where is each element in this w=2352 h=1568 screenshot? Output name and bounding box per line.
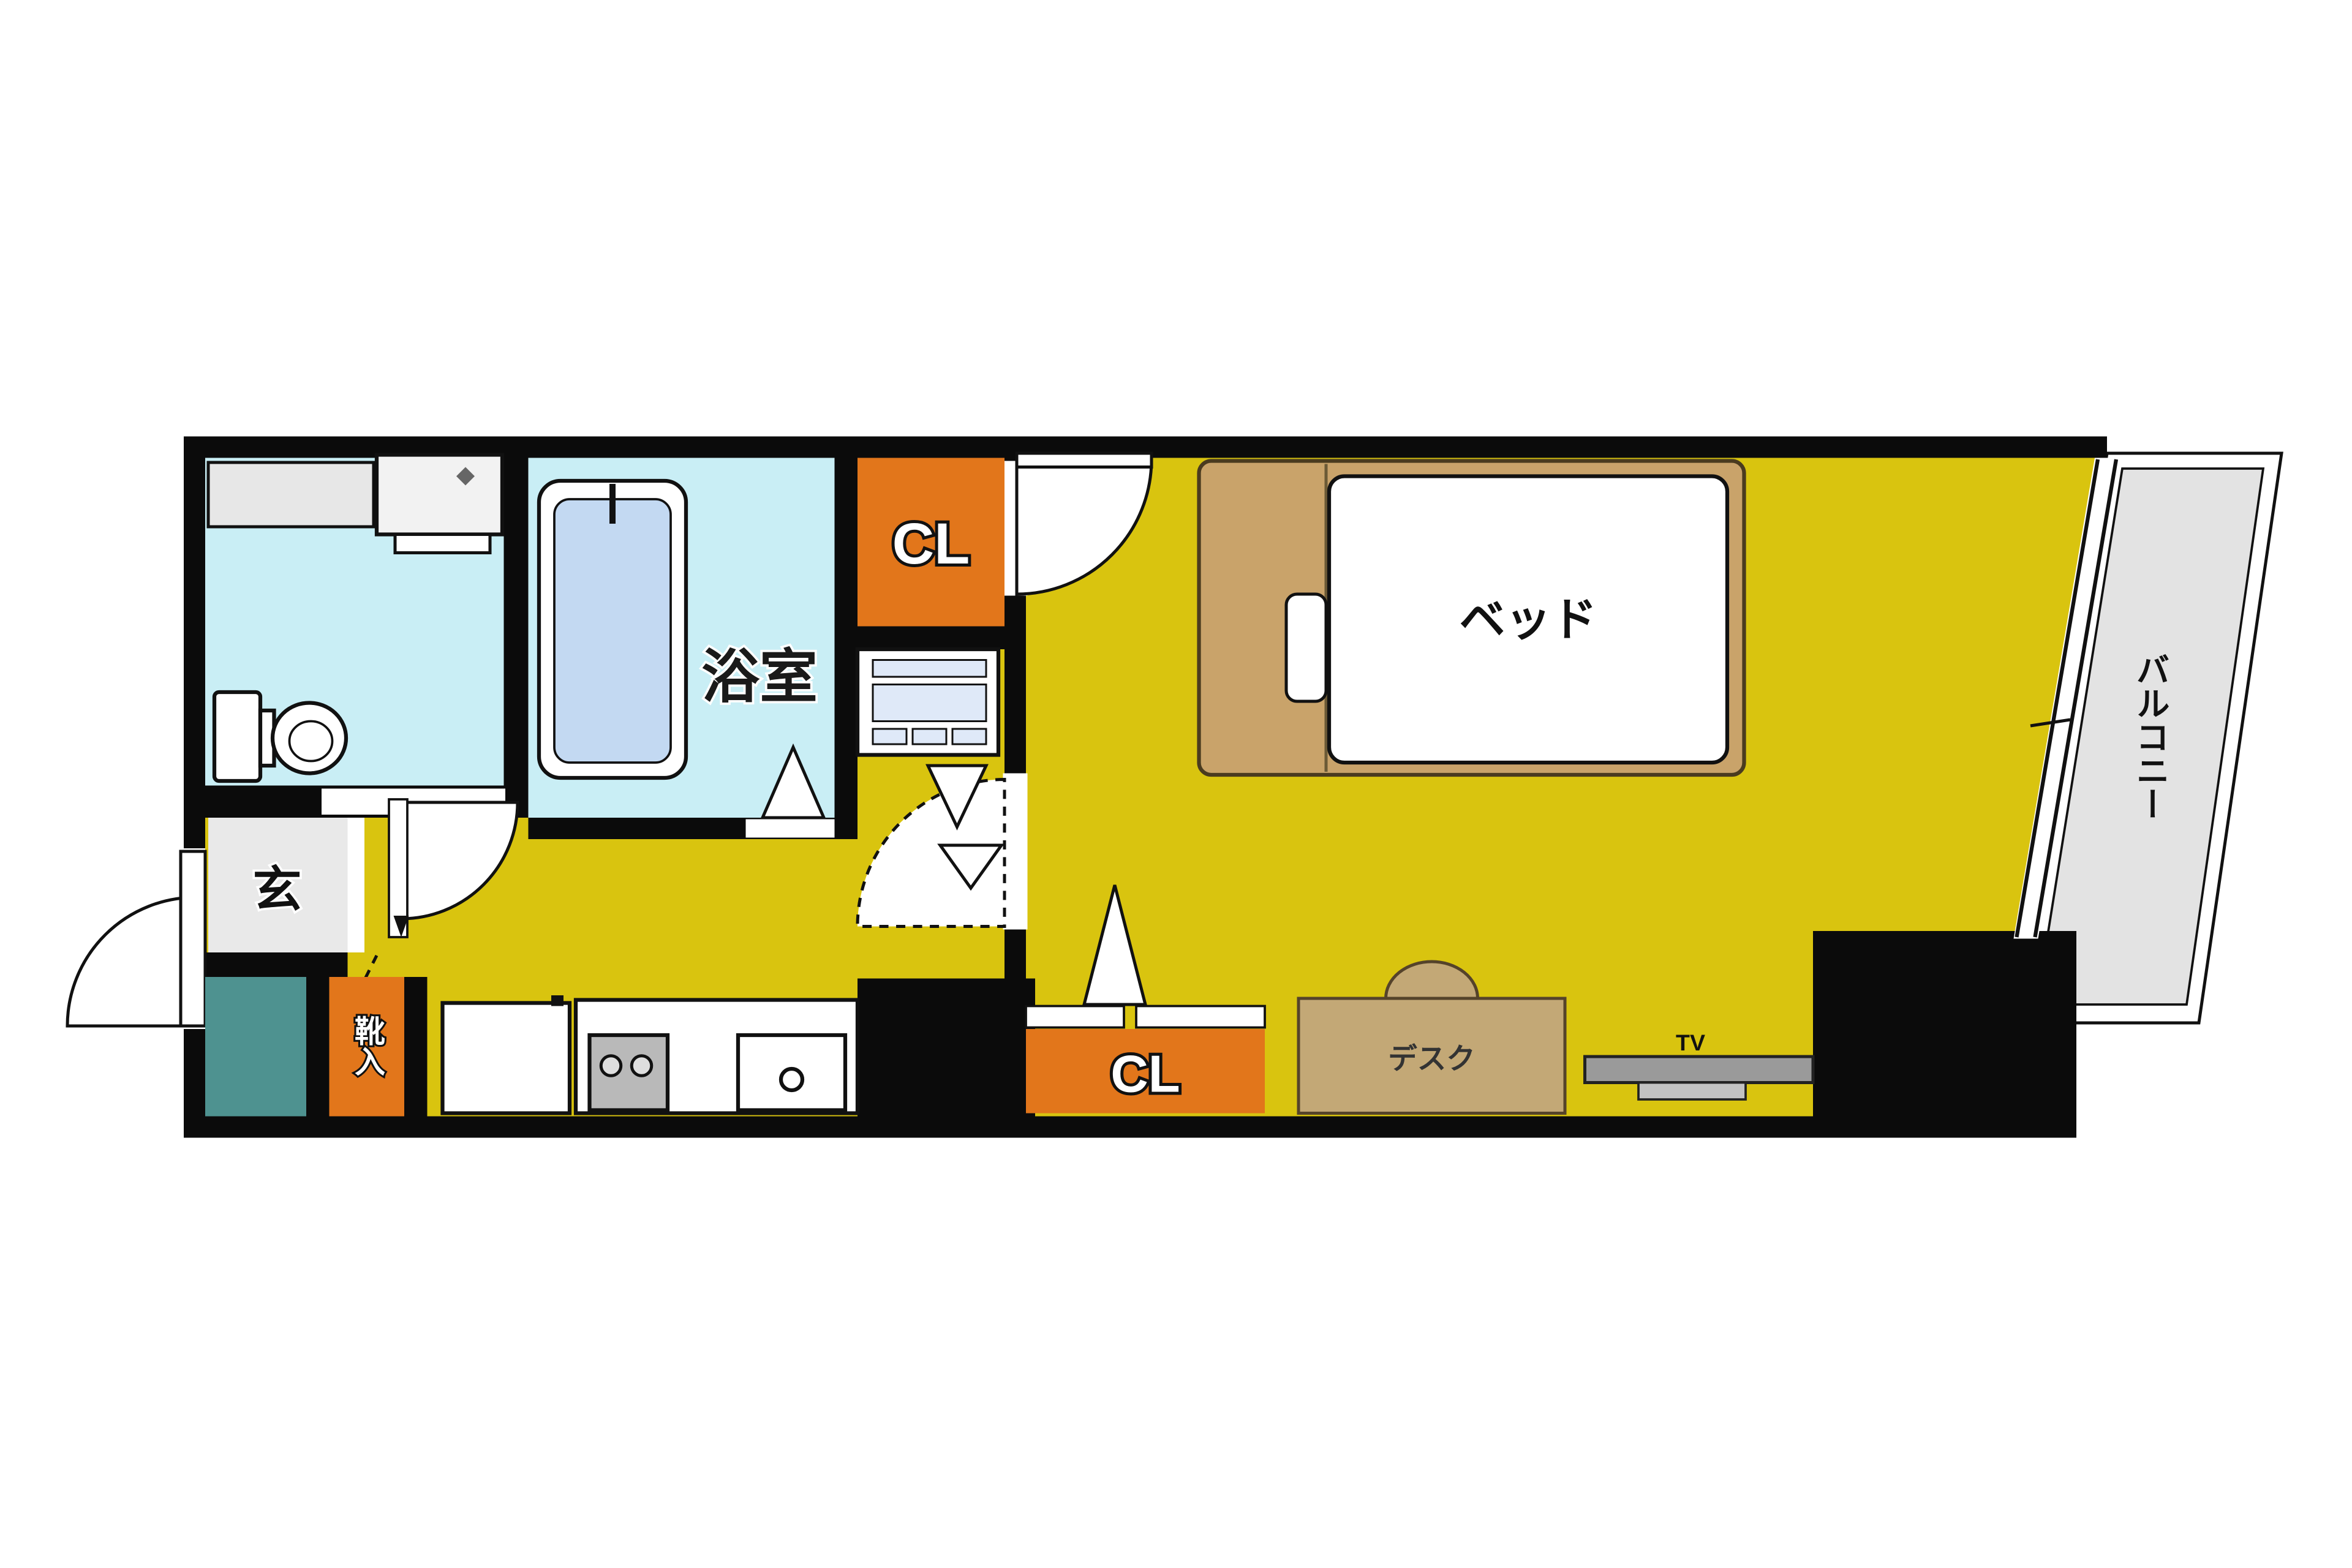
washer-panel-1 bbox=[873, 660, 986, 677]
shoe-cabinet-label: 靴入 bbox=[350, 1016, 385, 1077]
refrigerator-space bbox=[443, 1003, 570, 1114]
closet-threshold-right bbox=[1136, 1006, 1265, 1028]
wall-under-entrance bbox=[205, 952, 348, 977]
toilet-bowl-inner bbox=[290, 722, 333, 761]
wall-bottom-right-block bbox=[1813, 931, 2076, 1138]
bed-label: ベッド bbox=[1459, 594, 1597, 646]
closet-bottom-label: CL bbox=[1110, 1046, 1180, 1104]
floor-plan-canvas: 浴室 CL CL 玄 靴入 バルコニー ベッド デスク TV bbox=[0, 0, 2352, 1568]
washer-knob-3 bbox=[952, 729, 986, 744]
wall-shoe-right bbox=[404, 977, 428, 1117]
toilet-sink-tray bbox=[395, 535, 490, 553]
entrance-label: 玄 bbox=[253, 862, 302, 917]
bathroom-threshold bbox=[746, 820, 835, 838]
toilet-sink-unit bbox=[377, 455, 502, 535]
tv-label: TV bbox=[1676, 1030, 1705, 1055]
floor-plan-svg: 浴室 CL CL 玄 靴入 バルコニー ベッド デスク TV bbox=[0, 0, 2352, 1568]
wall-toilet-right bbox=[504, 458, 529, 786]
balcony-label: バルコニー bbox=[2131, 652, 2169, 821]
burner-left-icon bbox=[601, 1056, 621, 1076]
entrance-step-band bbox=[348, 818, 365, 952]
wall-kitchen-block bbox=[858, 979, 1035, 1117]
washer-knob-1 bbox=[873, 729, 907, 744]
tv-screen bbox=[1585, 1057, 1814, 1083]
wall-under-closet-top bbox=[858, 627, 1005, 650]
pillow bbox=[1286, 594, 1326, 701]
tv-stand bbox=[1638, 1083, 1746, 1100]
main-room-door-leaf bbox=[1017, 453, 1151, 467]
main-door-gap-mid bbox=[1003, 774, 1028, 930]
washer-knob-2 bbox=[913, 729, 946, 744]
sink-drain-icon bbox=[781, 1069, 802, 1090]
burner-right-icon bbox=[631, 1056, 652, 1076]
closet-threshold-left bbox=[1026, 1006, 1124, 1028]
bathtub-water bbox=[554, 499, 671, 763]
wall-bottom bbox=[184, 1117, 2076, 1138]
bathroom-label: 浴室 bbox=[701, 645, 818, 710]
stove bbox=[590, 1035, 668, 1110]
closet-top-label: CL bbox=[892, 511, 970, 576]
washing-machine-bay bbox=[858, 649, 998, 755]
desk-label: デスク bbox=[1388, 1042, 1476, 1076]
refrigerator-handle bbox=[551, 995, 563, 1006]
washer-panel-2 bbox=[873, 685, 986, 722]
front-door-leaf bbox=[181, 851, 205, 1026]
wall-bathroom-right bbox=[835, 458, 858, 840]
toilet-counter bbox=[208, 462, 374, 527]
teal-storage-box bbox=[205, 977, 306, 1117]
wall-teal-shoe bbox=[306, 977, 330, 1117]
kitchen bbox=[443, 995, 858, 1114]
toilet-tank bbox=[214, 692, 260, 781]
wall-left bbox=[184, 437, 205, 1138]
